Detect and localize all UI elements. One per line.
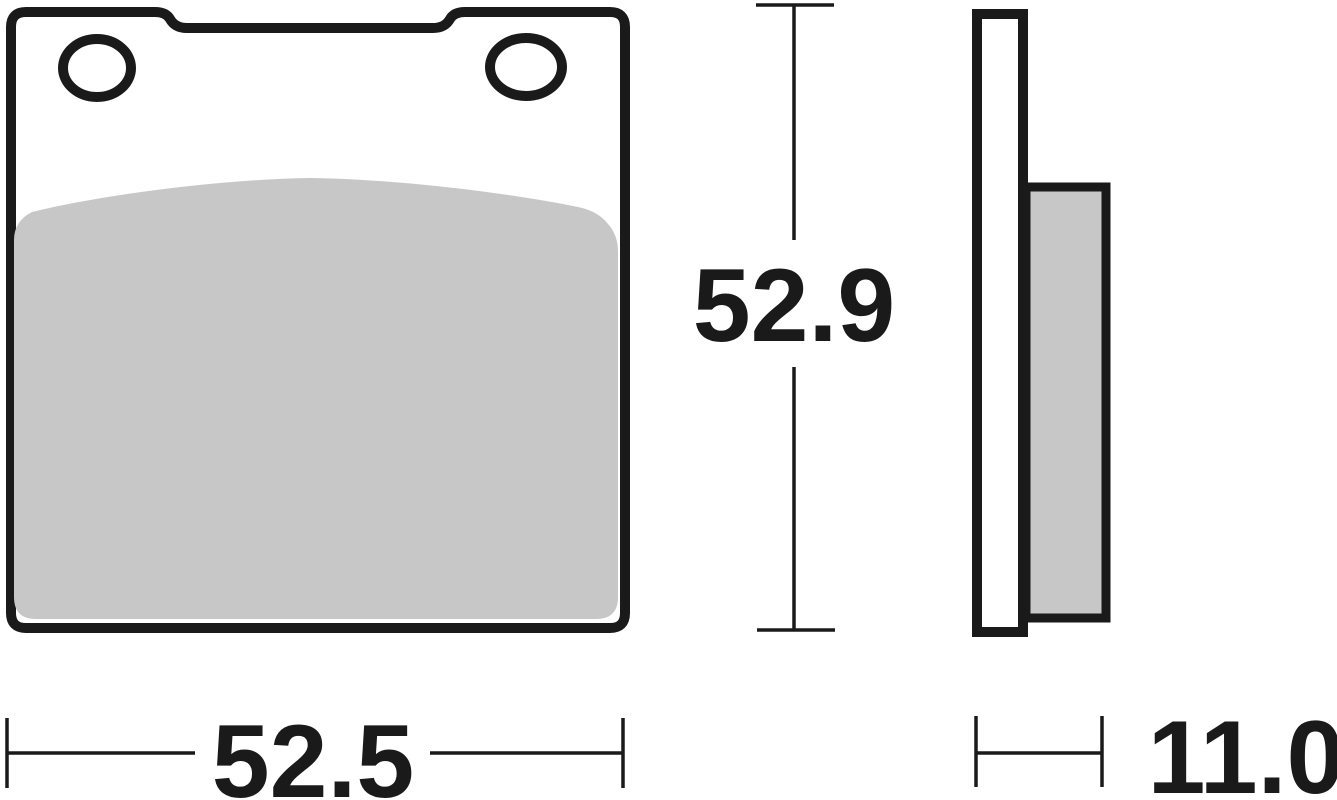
width-dimension-label: 52.5	[212, 704, 414, 800]
mounting-hole-left-icon	[63, 39, 131, 97]
height-dimension-label: 52.9	[693, 248, 895, 364]
mounting-hole-right-icon	[490, 38, 562, 96]
front-view	[11, 12, 625, 628]
side-view	[977, 14, 1106, 632]
thickness-dimension: 11.0	[976, 700, 1337, 800]
height-dimension: 52.9	[693, 5, 895, 630]
backplate-side	[977, 14, 1023, 632]
drawing-page: 52.9 52.5 11.0	[0, 0, 1337, 800]
friction-material-front	[14, 178, 618, 619]
friction-material-side	[1026, 187, 1106, 618]
thickness-dimension-label: 11.0	[1148, 700, 1337, 800]
width-dimension: 52.5	[7, 704, 623, 800]
technical-drawing-canvas: 52.9 52.5 11.0	[0, 0, 1337, 800]
